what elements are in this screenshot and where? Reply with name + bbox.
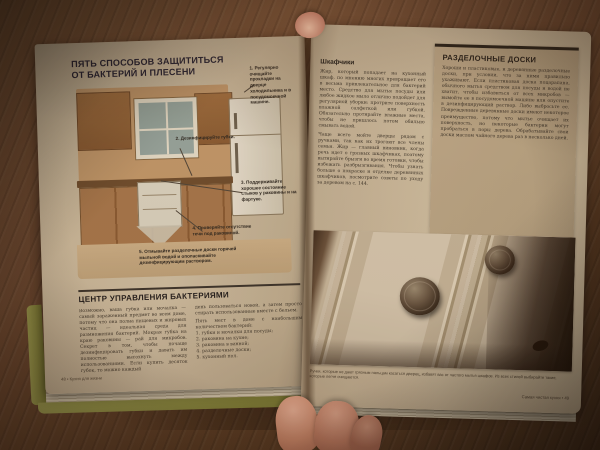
fridge-handle-top bbox=[234, 113, 238, 129]
illustration-dishwasher bbox=[137, 181, 182, 228]
section-columns: Возможно, ваша губка или мочалка — самый… bbox=[79, 302, 305, 373]
callout-5: 5. Отмывайте разделочные доски горячей м… bbox=[139, 246, 251, 267]
right-page-footer: Самая чистая кухня • 49 bbox=[522, 394, 570, 400]
cabinet-knobs-photo bbox=[310, 230, 576, 371]
cutting-boards-heading: РАЗДЕЛОЧНЫЕ ДОСКИ bbox=[442, 53, 570, 66]
cutting-boards-body: Хороши и пластиковые, и деревянные разде… bbox=[440, 66, 570, 142]
column2-intro: день пользоваться новой, а затем просто … bbox=[195, 302, 302, 317]
cabinets-column: Шкафчики Жир, который попадает на кухонн… bbox=[317, 58, 427, 192]
cabinets-paragraph-2: Чаще всего мойте дверцы рядом с ручками,… bbox=[317, 133, 424, 190]
cabinets-heading: Шкафчики bbox=[320, 58, 426, 69]
photo-caption: Ручки, которые не дают грязным пальцам к… bbox=[309, 368, 571, 386]
callout-4: 4. Проверяйте отсутствие течи под ракови… bbox=[192, 224, 252, 237]
callout-3: 3. Поддерживайте хорошее состояние стыко… bbox=[241, 178, 298, 203]
dishwasher-rack bbox=[142, 194, 176, 196]
fridge-handle-bottom bbox=[235, 143, 239, 173]
dishwasher-rack bbox=[143, 208, 177, 210]
section-column-2: день пользоваться новой, а затем просто … bbox=[195, 302, 304, 369]
book-spine bbox=[298, 30, 316, 416]
section-column-1: Возможно, ваша губка или мочалка — самый… bbox=[79, 306, 188, 373]
cabinets-paragraph-1: Жир, который попадает на кухонный шкаф, … bbox=[318, 70, 426, 133]
callout-1: 1. Регулярно очищайте прокладки на дверц… bbox=[249, 64, 296, 106]
right-page: Шкафчики Жир, который попадает на кухонн… bbox=[301, 24, 592, 414]
photo-scene: ПЯТЬ СПОСОБОВ ЗАЩИТИТЬСЯ ОТ БАКТЕРИЙ И П… bbox=[0, 0, 600, 450]
left-page: ПЯТЬ СПОСОБОВ ЗАЩИТИТЬСЯ ОТ БАКТЕРИЙ И П… bbox=[35, 36, 316, 394]
illustration-window bbox=[134, 97, 198, 159]
illustration-upper-cabinet-left bbox=[76, 91, 132, 151]
cutting-boards-sidebar: РАЗДЕЛОЧНЫЕ ДОСКИ Хороши и пластиковые, … bbox=[430, 44, 579, 238]
left-page-footer: 48 • Кухня для жизни bbox=[61, 375, 102, 381]
